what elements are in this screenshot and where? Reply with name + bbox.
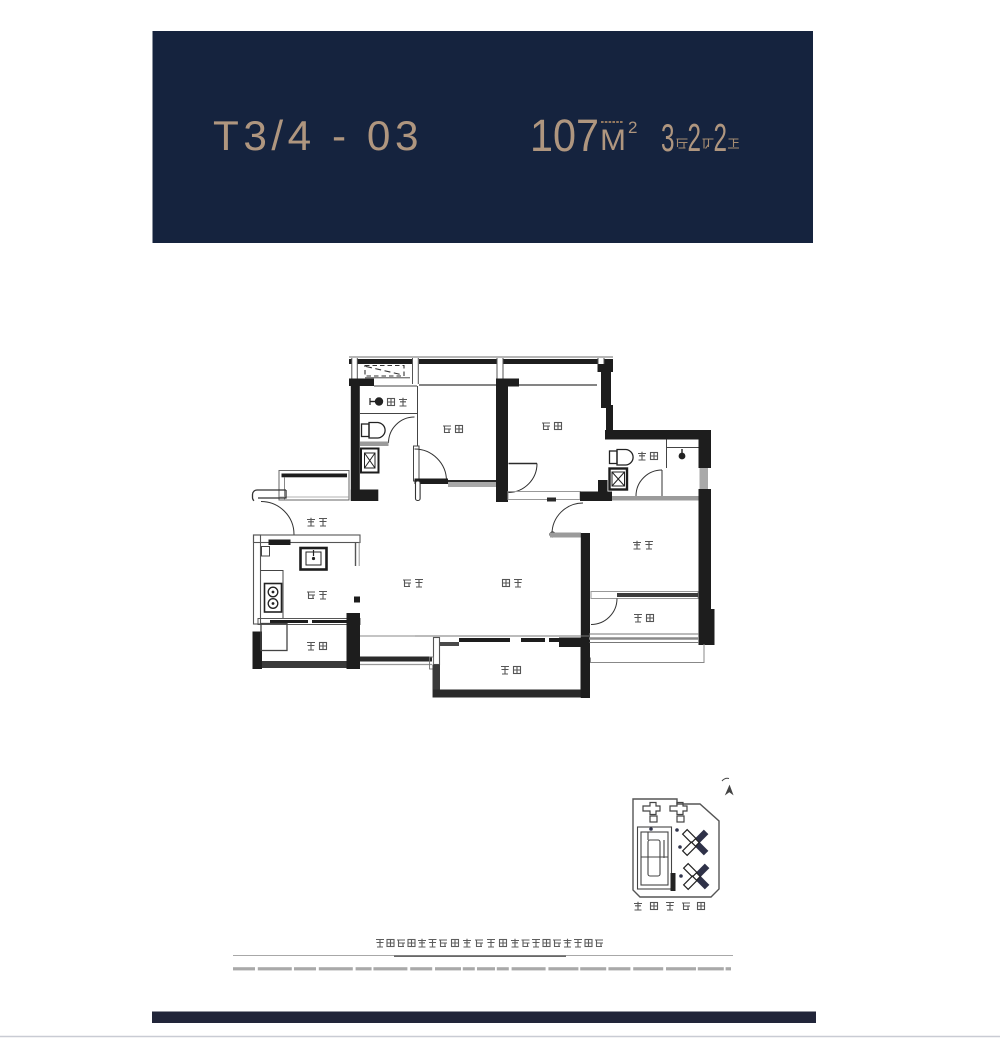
svg-text:2: 2 xyxy=(714,117,728,160)
svg-text:2: 2 xyxy=(688,117,702,160)
svg-text:107: 107 xyxy=(530,110,599,161)
svg-text:T3/4 - 03: T3/4 - 03 xyxy=(213,112,423,159)
svg-text:3: 3 xyxy=(661,117,675,160)
svg-text:2: 2 xyxy=(628,118,637,137)
svg-text:M: M xyxy=(600,124,626,157)
